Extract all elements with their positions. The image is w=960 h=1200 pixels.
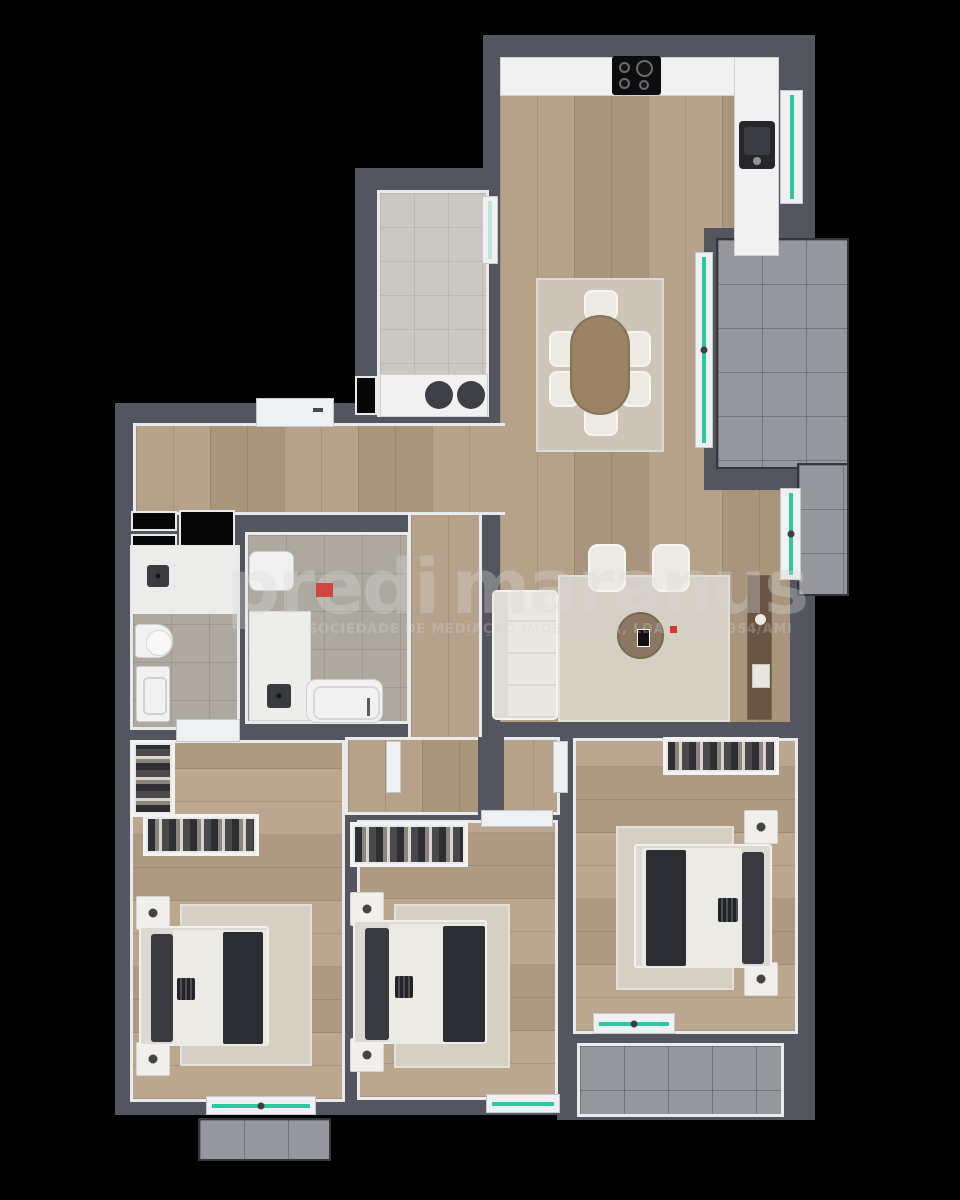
bed-master: [634, 844, 772, 968]
burner-icon: [636, 60, 653, 77]
bed-bedroom2: [353, 920, 487, 1044]
plant-icon: [757, 823, 766, 832]
bathtub: [306, 679, 383, 723]
washer-icon: [425, 381, 453, 409]
toilet-bath1: [135, 624, 173, 658]
hall-cabinet-1: [131, 511, 177, 531]
kitchen-window: [780, 90, 803, 204]
wall-landing-divider: [478, 737, 504, 815]
laundry-niche: [355, 376, 377, 415]
toilet-lid: [146, 630, 172, 656]
nightstand: [136, 896, 170, 930]
watermark-logo: predimaranus: [226, 549, 807, 625]
window-glass: [492, 1102, 554, 1106]
window-handle-icon: [258, 1102, 265, 1109]
bed-blanket: [443, 926, 485, 1042]
nightstand: [744, 810, 778, 844]
shower-drain-icon: [267, 684, 291, 708]
dining-balcony-slider: [695, 252, 713, 448]
nightstand: [136, 1042, 170, 1076]
wardrobe-bedroom2: [350, 822, 468, 867]
plant-icon: [363, 905, 372, 914]
cooktop: [612, 56, 661, 95]
burner-icon: [619, 62, 630, 73]
wardrobe-bedroom1-vertical: [131, 740, 175, 817]
floorplan-canvas: predimaranus SOCIEDADE DE MEDIAÇÃO IMOBI…: [0, 0, 960, 1200]
burner-icon: [639, 80, 649, 90]
door-handle-icon: [313, 408, 323, 412]
entry-door: [256, 398, 334, 427]
burner-icon: [619, 78, 630, 89]
hanging-clothes: [136, 745, 170, 812]
laundry-door: [482, 196, 498, 264]
balcony-upper-right: [716, 238, 849, 469]
bed-bedroom1: [139, 926, 269, 1046]
shower-drain-icon: [147, 565, 169, 587]
logo-red-square: [316, 583, 333, 597]
vanity-bath1: [136, 666, 170, 722]
faucet-icon: [753, 157, 761, 165]
door-glass: [488, 201, 492, 259]
dryer-icon: [457, 381, 485, 409]
balcony-master: [577, 1043, 784, 1117]
floor-landing: [345, 737, 560, 815]
watermark-logo-pr: pr: [226, 542, 313, 631]
decor-box-icon: [752, 664, 770, 688]
bed-blanket: [646, 850, 686, 966]
plant-icon: [363, 1051, 372, 1060]
plant-icon: [149, 909, 158, 918]
wardrobe-master: [663, 737, 779, 775]
watermark-logo-di: di: [362, 542, 437, 631]
faucet-icon: [367, 698, 370, 716]
sink-basin: [744, 127, 770, 155]
bedroom1-door: [386, 741, 401, 793]
master-door: [553, 741, 568, 793]
watermark-subtitle: SOCIEDADE DE MEDIAÇÃO IMOBILIÁRIA, LDALI…: [308, 622, 793, 637]
kitchen-sink: [739, 121, 775, 169]
watermark-company: SOCIEDADE DE MEDIAÇÃO IMOBILIÁRIA, LDA: [308, 622, 665, 637]
sink-basin: [143, 677, 167, 715]
balcony-bedroom1: [198, 1118, 331, 1161]
bed-pillows: [365, 928, 389, 1040]
hall-cabinet-2: [131, 534, 177, 547]
floor-entry-hall: [133, 423, 505, 515]
window-glass: [790, 95, 794, 199]
bed-blanket: [223, 932, 263, 1044]
wardrobe-bedroom1-horizontal: [143, 814, 259, 856]
bed-runner: [177, 978, 195, 1000]
window-handle-icon: [631, 1020, 638, 1027]
watermark-logo-maranus: maranus: [451, 542, 806, 631]
window-handle-icon: [787, 531, 794, 538]
window-handle-icon: [701, 347, 708, 354]
bedroom2-window: [486, 1094, 560, 1113]
bed-pillows: [742, 852, 764, 964]
hanging-clothes: [148, 819, 254, 851]
master-balcony-window: [593, 1013, 675, 1034]
plant-icon: [757, 975, 766, 984]
bathroom1-door: [176, 719, 240, 742]
bedroom1-window: [206, 1096, 316, 1115]
bedroom2-door: [481, 810, 553, 827]
plant-icon: [149, 1055, 158, 1064]
bed-pillows: [151, 934, 173, 1042]
hanging-clothes: [668, 742, 774, 770]
watermark-license: LIC. 2954/AMI: [682, 622, 793, 637]
bed-runner: [718, 898, 738, 922]
dining-table: [570, 315, 630, 415]
red-dot-icon: [670, 626, 677, 633]
bed-runner: [395, 976, 413, 998]
hanging-clothes: [355, 827, 463, 862]
